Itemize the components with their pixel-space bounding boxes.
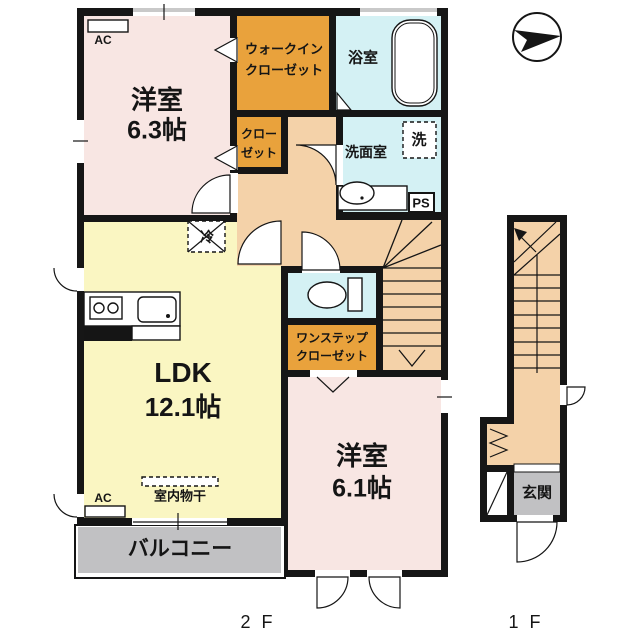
washbasin-icon [338,182,407,210]
hallway-2f [336,220,383,266]
label-washroom: 洗面室 [345,145,387,159]
kitchen-counter [84,292,180,341]
label-indoor-drying: 室内物干 [154,490,206,503]
label-ldk-size: 12.1帖 [145,394,222,420]
label-ac-bottom: AC [94,492,111,504]
label-ps: PS [412,197,429,210]
label-room63-size: 6.3帖 [127,119,187,144]
bathtub-icon [392,20,437,106]
floorplan-drawing [0,0,640,640]
kitchen-sink-icon [138,297,176,322]
label-floor-1f: 1 F [508,613,543,631]
label-room61-name: 洋室 [336,443,388,469]
label-room63-name: 洋室 [131,87,183,113]
floorplan-canvas: 洋室 6.3帖 ウォークイン クローゼット 浴室 クロー ゼット 洗面室 洗 P… [0,0,640,640]
label-onestep-line2: クローゼット [296,350,368,362]
ac-unit-bottom [85,506,125,517]
compass-icon [513,13,561,61]
entrance-step [514,464,560,472]
label-onestep-line1: ワンステップ [296,332,368,344]
opening-1f [507,424,514,465]
label-ldk-name: LDK [154,359,212,387]
label-bath: 浴室 [348,51,378,66]
label-closet-line2: ゼット [241,147,277,159]
label-floor-2f: 2 F [240,613,275,631]
label-balcony: バルコニー [128,539,233,560]
label-wic-line1: ウォークイン [245,43,323,56]
ac-unit-top [88,20,128,32]
room-western-6-1 [288,377,441,570]
label-room61-size: 6.1帖 [332,477,392,502]
stairs-2f-area [383,220,441,370]
label-wic-line2: クローゼット [245,64,323,77]
label-ac-top: AC [94,34,111,46]
label-closet-line1: クロー [241,128,277,140]
indoor-drying-symbol [142,477,218,486]
label-entrance: 玄関 [522,486,552,501]
label-fridge: 冷 [200,230,214,244]
label-washer: 洗 [411,133,426,148]
